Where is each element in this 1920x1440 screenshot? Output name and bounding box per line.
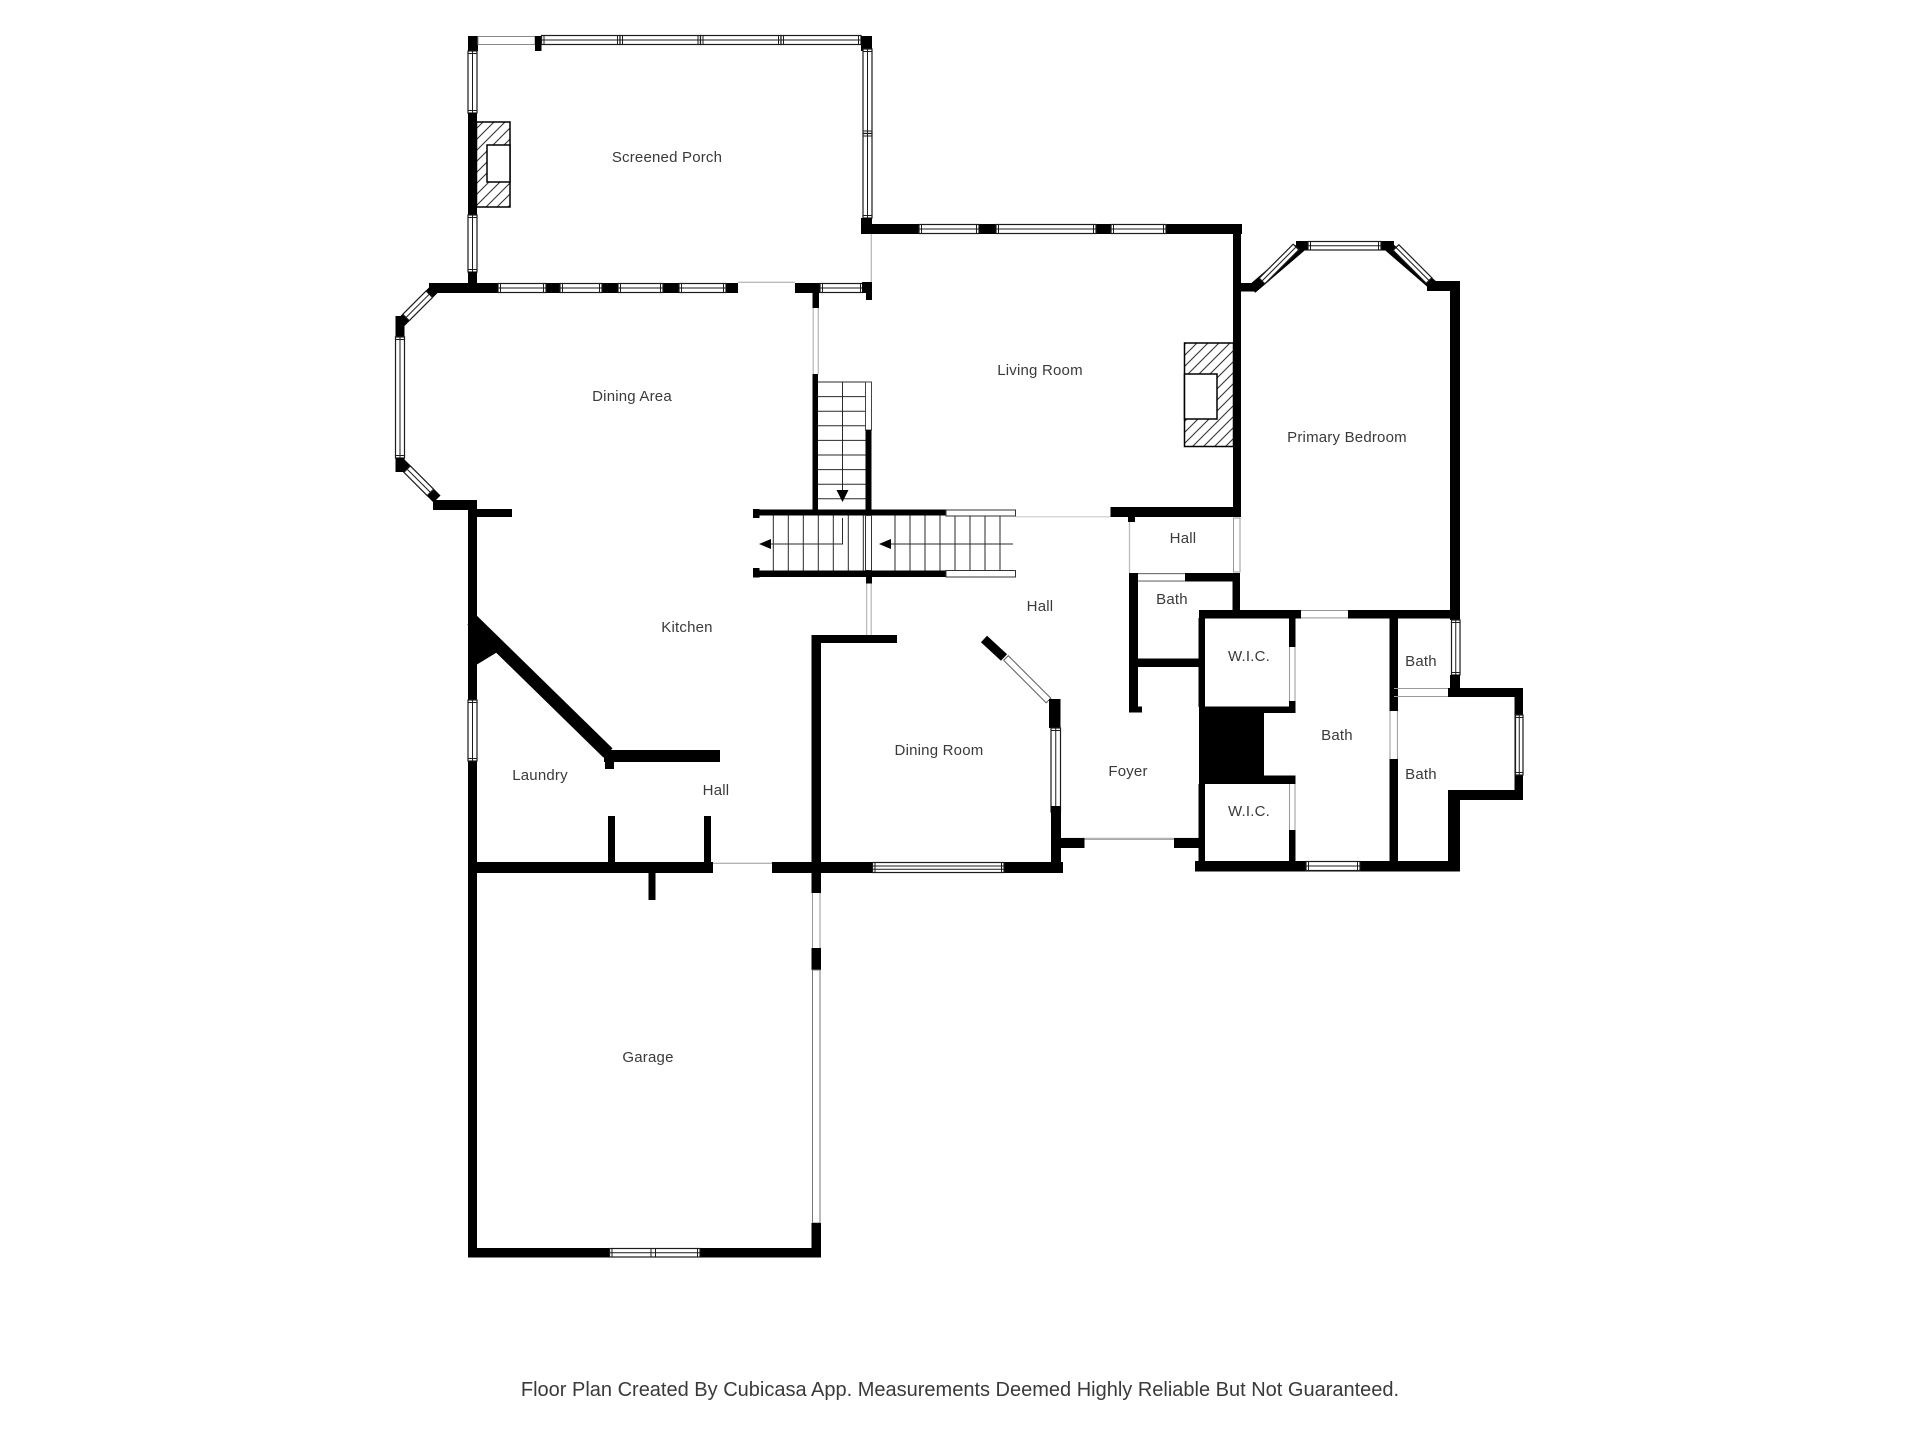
svg-text:Floor Plan Created By Cubicasa: Floor Plan Created By Cubicasa App. Meas… — [521, 1379, 1399, 1401]
svg-text:Bath: Bath — [1405, 766, 1437, 783]
svg-text:Dining Room: Dining Room — [895, 742, 984, 759]
svg-text:Garage: Garage — [622, 1049, 673, 1066]
svg-text:W.I.C.: W.I.C. — [1228, 803, 1270, 820]
svg-text:W.I.C.: W.I.C. — [1228, 648, 1270, 665]
svg-text:Bath: Bath — [1405, 653, 1437, 670]
svg-text:Hall: Hall — [703, 782, 730, 799]
svg-text:Kitchen: Kitchen — [661, 619, 712, 636]
svg-text:Screened Porch: Screened Porch — [612, 149, 722, 166]
svg-text:Bath: Bath — [1156, 591, 1188, 608]
svg-text:Hall: Hall — [1027, 598, 1054, 615]
svg-text:Hall: Hall — [1170, 530, 1197, 547]
svg-text:Dining Area: Dining Area — [592, 388, 672, 405]
svg-text:Primary Bedroom: Primary Bedroom — [1287, 429, 1407, 446]
svg-text:Living Room: Living Room — [997, 362, 1083, 379]
svg-text:Bath: Bath — [1321, 727, 1353, 744]
svg-text:Foyer: Foyer — [1108, 763, 1147, 780]
svg-text:Laundry: Laundry — [512, 767, 568, 784]
